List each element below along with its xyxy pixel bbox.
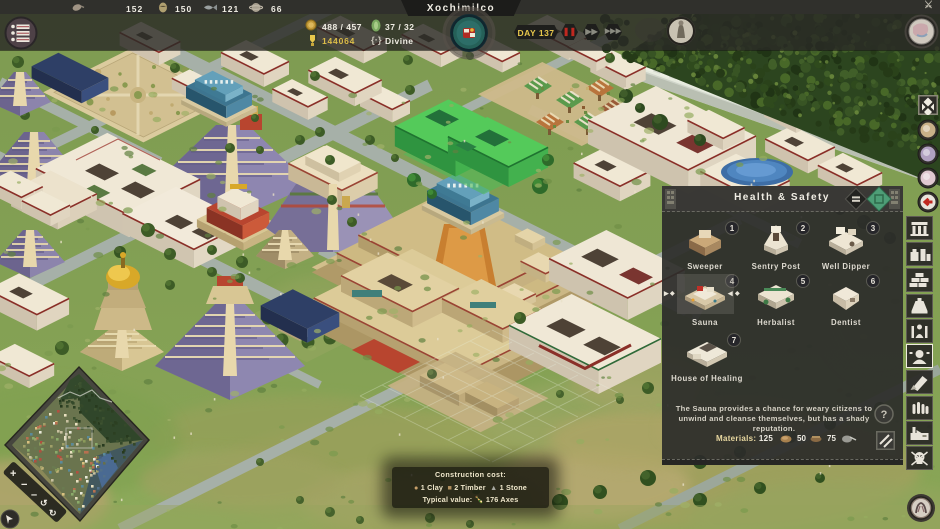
svg-text:?: ? bbox=[881, 409, 888, 421]
